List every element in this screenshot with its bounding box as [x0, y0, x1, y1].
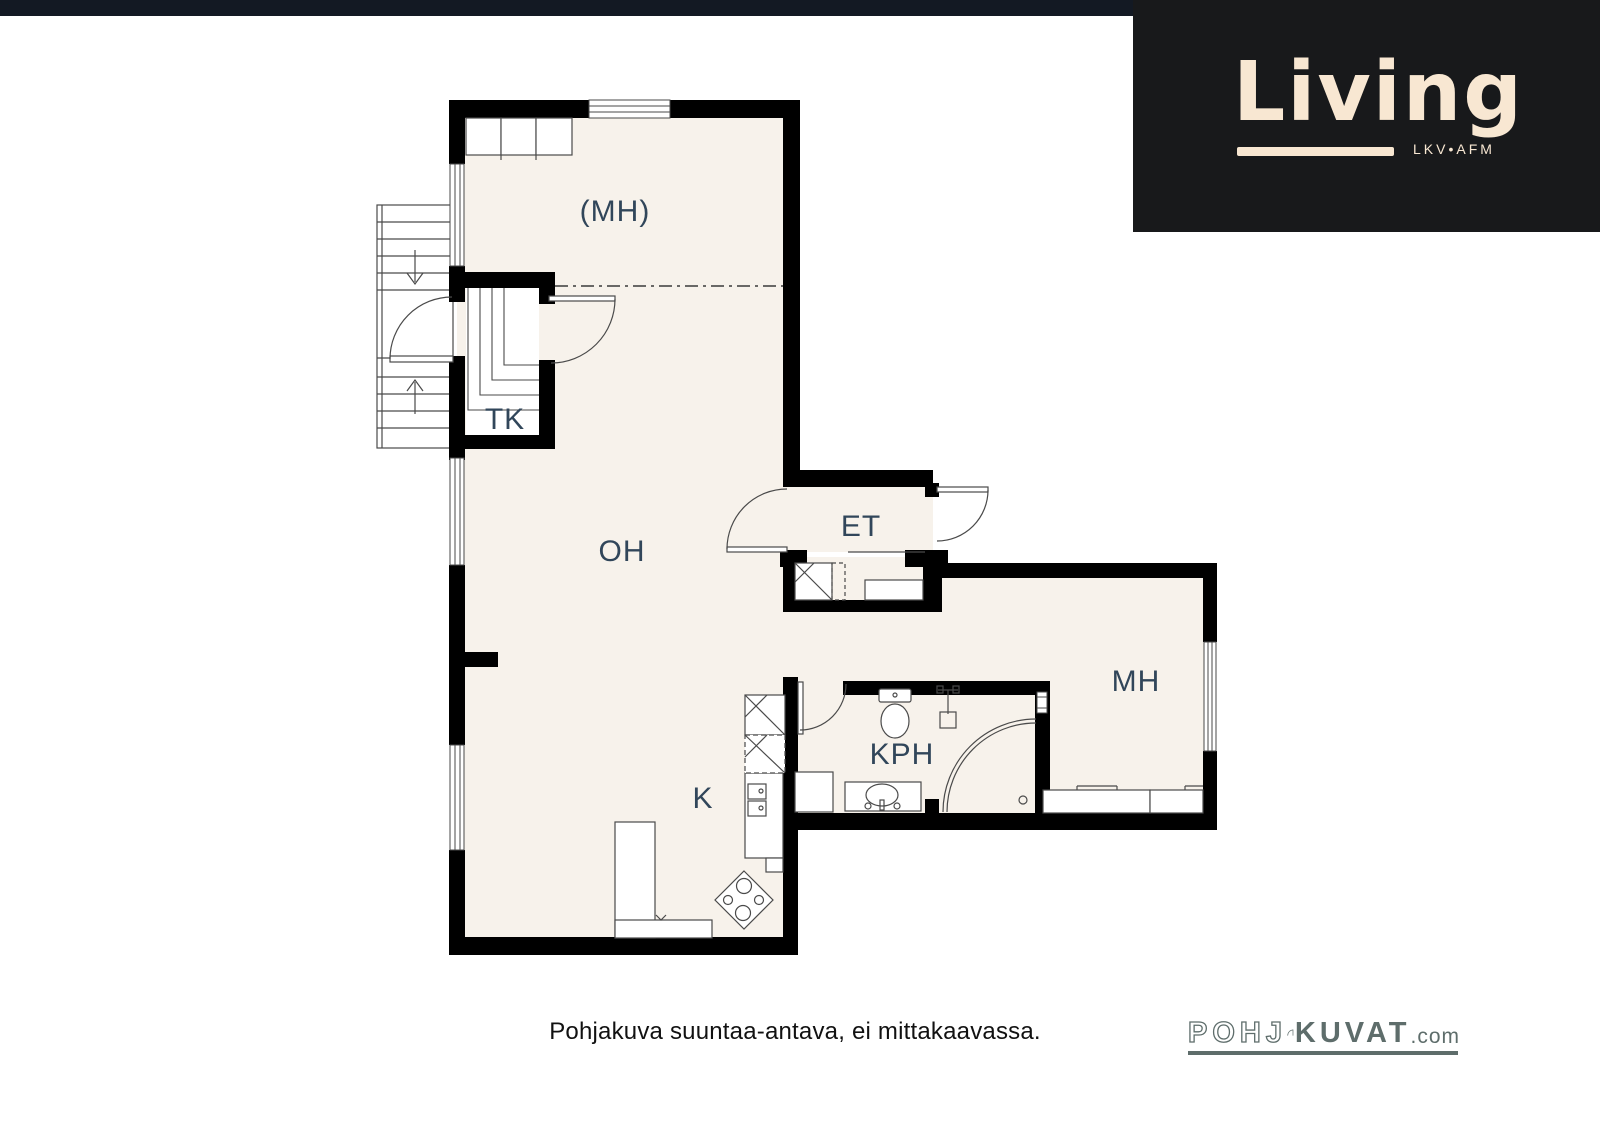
room-label-k: K [692, 782, 713, 815]
room-label-mh-upper: (MH) [580, 195, 651, 228]
kph-side-counter [795, 772, 833, 812]
door-arc-icon [1287, 1017, 1294, 1048]
room-label-et: ET [841, 510, 881, 543]
window-left-middle [450, 458, 464, 565]
wall-hatch-kph-mh [1037, 692, 1047, 713]
bathroom-sink [845, 782, 921, 811]
pohjakuvat-logo-solid-text: KUVAT [1295, 1019, 1411, 1048]
pohjakuvat-logo: POHJ KUVAT .com [1188, 1016, 1460, 1056]
room-label-tk: TK [485, 403, 525, 436]
window-mh-right [1204, 642, 1216, 751]
pohjakuvat-logo-underline [1188, 1051, 1458, 1055]
room-label-kph: KPH [870, 738, 935, 771]
window-left-upper [450, 164, 464, 266]
door-et-entry [937, 487, 988, 541]
room-label-oh: OH [599, 535, 646, 568]
pohjakuvat-logo-suffix: .com [1410, 1026, 1460, 1048]
exterior-staircase [377, 205, 453, 448]
window-top [589, 100, 670, 118]
room-label-mh: MH [1112, 665, 1161, 698]
fridge [745, 695, 785, 735]
toilet [879, 689, 911, 738]
freezer [745, 735, 785, 773]
wardrobe-mh [1043, 786, 1203, 813]
kitchen-sink-counter [745, 773, 783, 872]
wardrobe-mh-upper [466, 118, 572, 160]
window-left-lower [450, 745, 464, 850]
floorplan-drawing: (MH) TK OH ET KPH MH K [0, 0, 1600, 1132]
pohjakuvat-logo-outline-text: POHJ [1188, 1019, 1287, 1048]
